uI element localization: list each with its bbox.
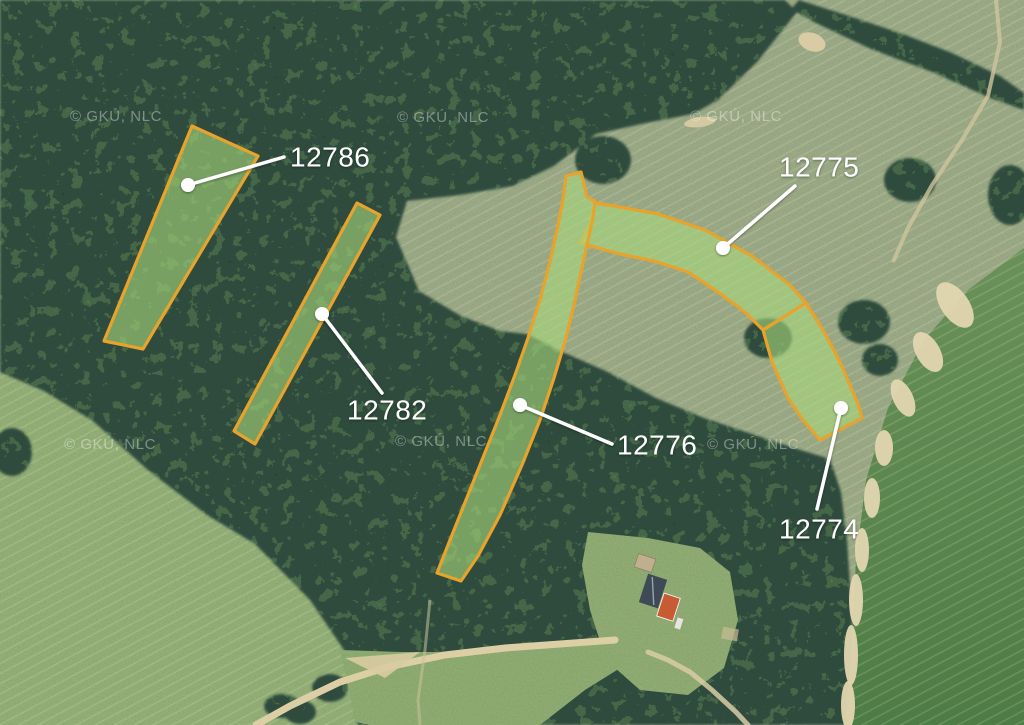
map-attribution-watermark: © GKÚ, NLC [690,108,782,125]
parcel-12786-marker-dot [181,178,195,192]
parcel-12774-marker-dot [834,401,848,415]
sand-patch [849,574,863,626]
sand-patch [875,430,893,466]
parcel-12786-label: 12786 [290,142,370,173]
map-attribution-watermark: © GKÚ, NLC [707,436,799,453]
sand-patch [844,625,858,685]
map-canvas[interactable]: © GKÚ, NLC© GKÚ, NLC© GKÚ, NLC© GKÚ, NLC… [0,0,1024,725]
parcel-12782-marker-dot [315,307,329,321]
parcel-12776-label: 12776 [617,430,697,461]
map-attribution-watermark: © GKÚ, NLC [395,433,487,450]
parcel-12782-label: 12782 [347,395,427,426]
tree-clump [838,300,890,344]
parcel-12776-marker-dot [513,398,527,412]
parcel-12775-marker-dot [716,241,730,255]
map-attribution-watermark: © GKÚ, NLC [397,109,489,126]
parcel-12774-label: 12774 [779,514,859,545]
sand-patch [864,478,880,518]
map-attribution-watermark: © GKÚ, NLC [70,108,162,125]
parcel-12775-label: 12775 [779,152,859,183]
tree-clump [862,344,898,376]
map-attribution-watermark: © GKÚ, NLC [64,436,156,453]
